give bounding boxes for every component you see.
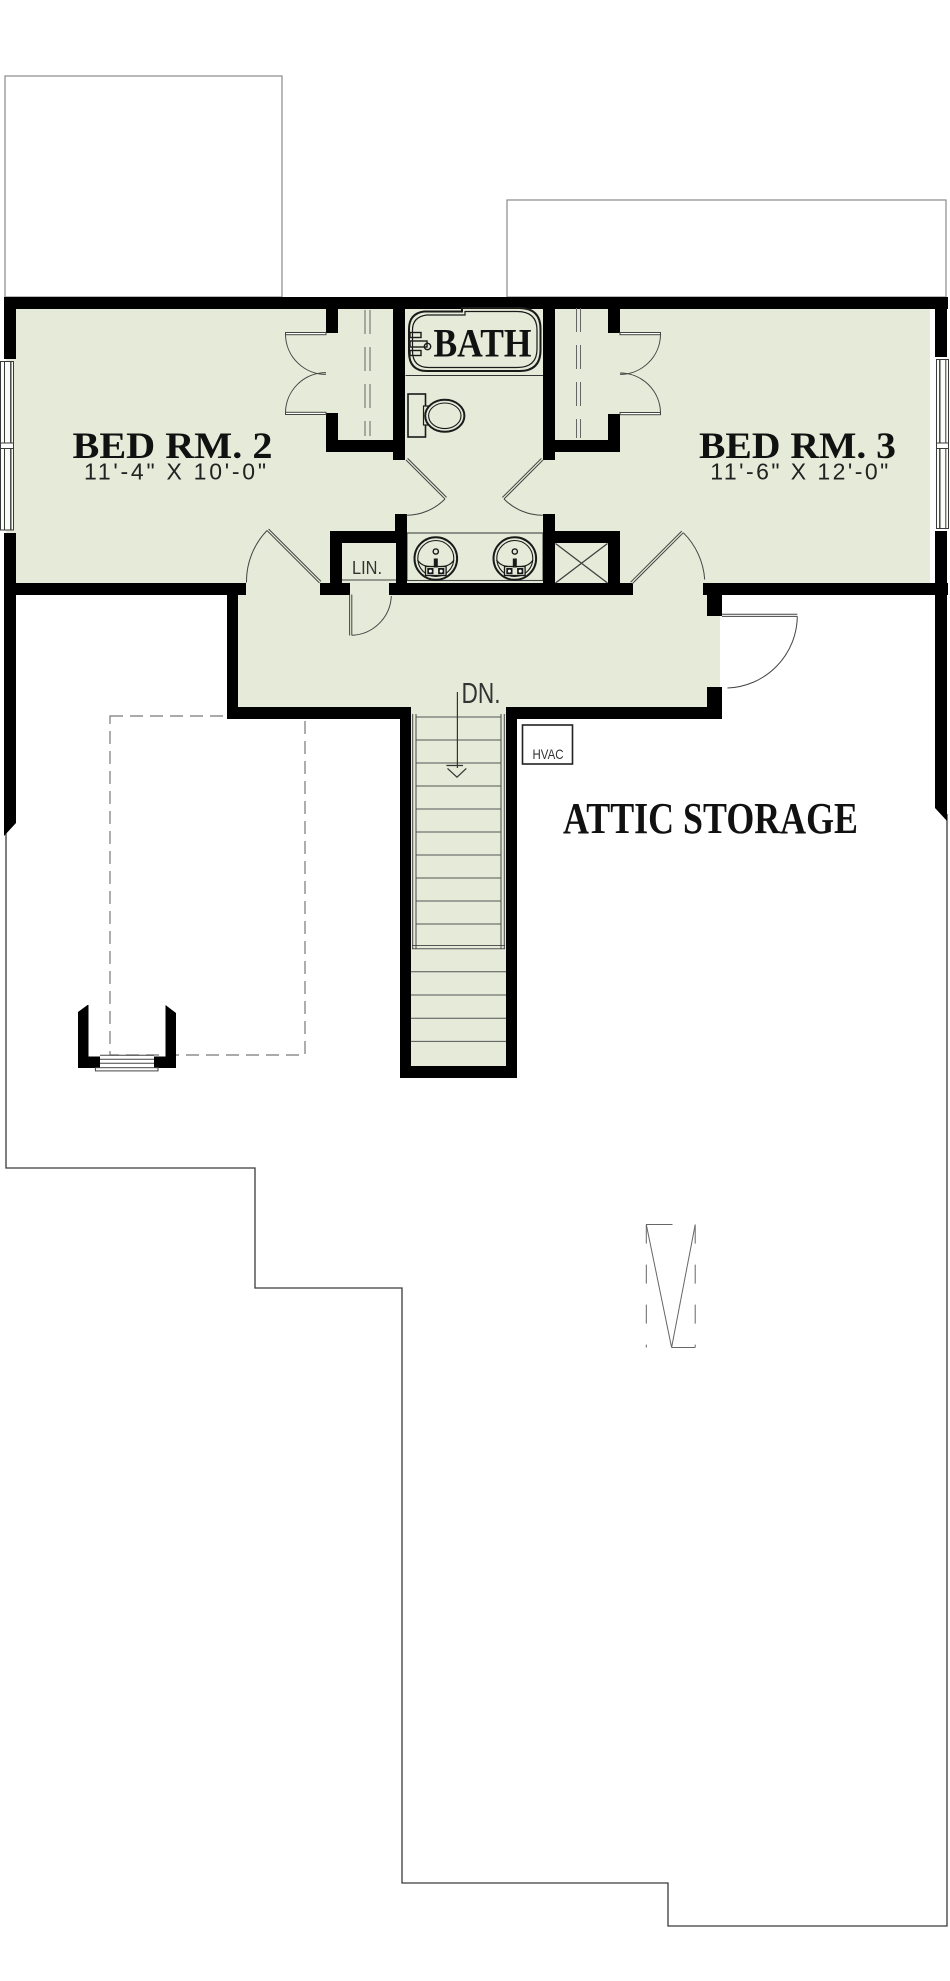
svg-text:HVAC: HVAC — [533, 746, 564, 762]
svg-text:DN.: DN. — [462, 678, 501, 710]
svg-text:BATH: BATH — [434, 321, 532, 366]
svg-text:ATTIC STORAGE: ATTIC STORAGE — [563, 794, 858, 843]
svg-text:LIN.: LIN. — [352, 558, 382, 578]
